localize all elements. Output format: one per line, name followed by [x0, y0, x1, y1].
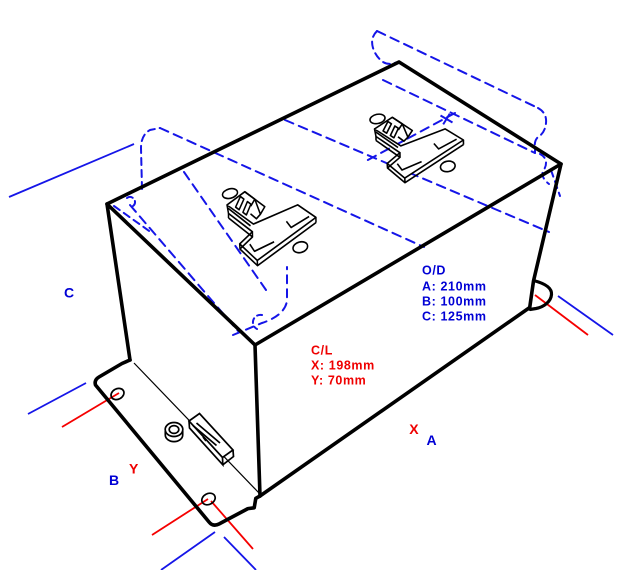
svg-text:C: 125mm: C: 125mm [422, 310, 487, 324]
svg-text:C/L: C/L [311, 344, 333, 358]
svg-text:X: 198mm: X: 198mm [311, 359, 375, 373]
svg-text:A: 210mm: A: 210mm [422, 280, 487, 294]
svg-text:C: C [64, 285, 74, 301]
svg-text:Y: 70mm: Y: 70mm [311, 374, 366, 388]
svg-text:B: 100mm: B: 100mm [422, 295, 487, 309]
svg-text:O/D: O/D [422, 264, 446, 278]
svg-text:Y: Y [129, 461, 139, 477]
svg-text:A: A [427, 432, 437, 448]
svg-text:X: X [409, 421, 419, 437]
svg-text:B: B [109, 472, 119, 488]
